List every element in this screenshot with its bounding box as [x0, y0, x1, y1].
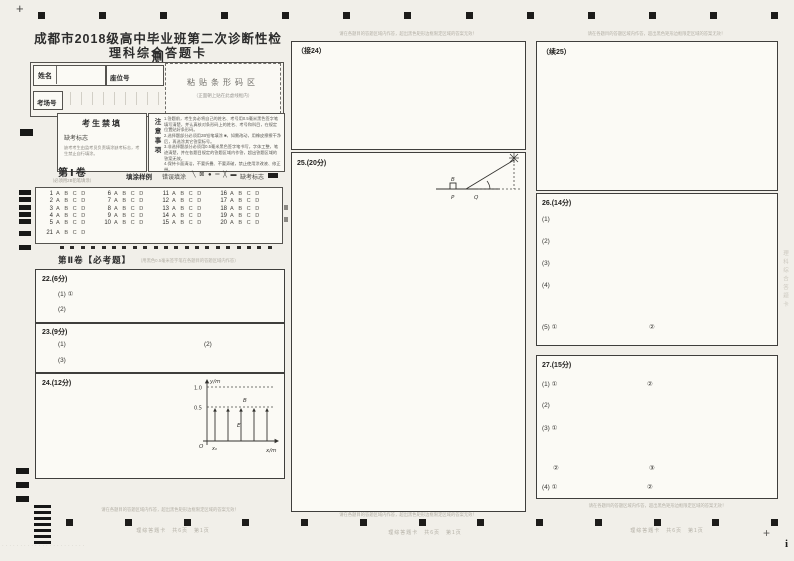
bubble-q20-D[interactable]: D [255, 220, 259, 226]
bubble-q1-D[interactable]: D [81, 191, 85, 197]
fig25-b-label: B [451, 177, 455, 183]
tmark [771, 12, 778, 19]
q27-part3b: ② [553, 464, 559, 472]
bubble-q8-C[interactable]: C [131, 206, 135, 212]
tmark [419, 519, 426, 526]
bar [34, 517, 51, 520]
bubble-q8-A[interactable]: A [114, 206, 118, 212]
notice-item-2: 2.选择题部分必须用2B铅笔填涂 ■，如需改动，用橡皮擦擦干净后，再选涂其它答案… [164, 133, 281, 144]
bubble-q1-B[interactable]: B [64, 191, 68, 197]
answer-row-q1: 1ABCD [40, 191, 98, 197]
answer-row-q3: 3ABCD [40, 206, 98, 212]
question-number: 20 [214, 220, 227, 226]
wrong-fill-label: 错误填涂 [162, 172, 186, 181]
part1-title: 第Ⅰ卷 [58, 164, 88, 179]
q27-part3: (3) ① [542, 424, 557, 432]
tmark [184, 519, 191, 526]
tmark [160, 12, 167, 19]
answer-grid-clock-ticks [60, 246, 272, 249]
answer-row-q7: 7ABCD [98, 198, 156, 204]
barcode-paste-area[interactable]: 粘贴条形码区 （正面朝上贴在此虚线框内） [165, 63, 281, 114]
bubble-q3-B[interactable]: B [64, 206, 68, 212]
part1-subtitle: （必须用2B铅笔填涂） [50, 178, 94, 184]
registration-mark [16, 482, 29, 488]
q27-answer-box[interactable]: 27.(15分) (1) ① ② (2) (3) ① ② ③ (4) ① ② [536, 355, 778, 499]
gtick [112, 246, 116, 249]
tmark [466, 12, 473, 19]
gtick [247, 246, 251, 249]
barcode-title: 粘贴条形码区 [166, 77, 280, 88]
answer-row-q6: 6ABCD [98, 191, 156, 197]
q24-cont-label: （接24） [297, 46, 326, 56]
answer-row-q2: 2ABCD [40, 198, 98, 204]
bubble-q10-A[interactable]: A [114, 220, 118, 226]
tmark [38, 12, 45, 19]
registration-mark [16, 496, 29, 502]
corner-i-mark: i [785, 538, 788, 550]
bubble-q8-B[interactable]: B [122, 206, 126, 212]
page-subtitle: 理科综合答题卡 [30, 44, 286, 61]
tmark [712, 519, 719, 526]
seat-number-field[interactable]: 座位号 [106, 65, 164, 86]
q27-part1b: ② [647, 380, 653, 388]
registration-mark [19, 245, 31, 250]
bubble-q4-B[interactable]: B [64, 213, 68, 219]
q26-part1: (1) [542, 216, 550, 223]
q22-part2: (2) [58, 306, 66, 313]
q26-part4: (4) [542, 282, 550, 289]
seat-label: 座位号 [110, 72, 130, 82]
tickv [103, 92, 104, 105]
q27-part1: (1) ① [542, 380, 557, 388]
q22-part1: (1) ① [58, 290, 73, 298]
q23-part1: (1) [58, 341, 66, 348]
bubble-q7-D[interactable]: D [139, 199, 143, 205]
question-number: 18 [214, 206, 227, 212]
room-number-field[interactable]: 考场号 [33, 91, 63, 110]
fig24-ylabel: y/m [209, 379, 220, 385]
bubble-q13-D[interactable]: D [197, 206, 201, 212]
fig24-b-label: B [243, 398, 247, 404]
absent-mark-label: 缺考标志 [64, 133, 88, 142]
tmark [282, 12, 289, 19]
q24-continued-box[interactable]: （接24） [291, 41, 526, 150]
bubble-q13-B[interactable]: B [180, 206, 184, 212]
bubble-q15-B[interactable]: B [180, 220, 184, 226]
answer-row-q5: 5ABCD [40, 220, 98, 226]
gtick [60, 246, 64, 249]
tmark [710, 12, 717, 19]
bubble-q17-C[interactable]: C [247, 199, 251, 205]
fig24-e-label: E [237, 423, 241, 429]
answer-row-q14: 14ABCD [156, 213, 214, 219]
bar [34, 523, 51, 526]
answer-row-q21: 21ABCD [40, 230, 90, 236]
notice-item-3: 3.非选择题部分必须用0.5毫米黑色签字笔书写，字体工整，笔迹清楚，并在各题目规… [164, 144, 281, 161]
bubble-q8-D[interactable]: D [139, 206, 143, 212]
registration-mark [284, 217, 288, 222]
fig25-burst-icon [509, 153, 519, 163]
bubble-q12-C[interactable]: C [189, 199, 193, 205]
bubble-q12-B[interactable]: B [180, 199, 184, 205]
tmark [477, 519, 484, 526]
bubble-q12-D[interactable]: D [197, 199, 201, 205]
answer-row-q12: 12ABCD [156, 198, 214, 204]
q26-part3: (3) [542, 260, 550, 267]
bubble-q17-A[interactable]: A [230, 199, 234, 205]
gtick [237, 246, 241, 249]
bubble-q19-D[interactable]: D [255, 213, 259, 219]
question-number: 2 [40, 198, 53, 204]
bubble-q10-B[interactable]: B [122, 220, 126, 226]
bubble-q14-A[interactable]: A [172, 213, 176, 219]
tmark [649, 12, 656, 19]
bubble-q3-A[interactable]: A [56, 206, 60, 212]
room-digit-ticks [70, 92, 170, 105]
bubble-q16-B[interactable]: B [238, 191, 242, 197]
bubble-q15-D[interactable]: D [197, 220, 201, 226]
registration-mark [19, 231, 31, 236]
bubble-q6-A[interactable]: A [114, 191, 118, 197]
bar [34, 535, 51, 538]
q26-part5: (5) ① [542, 323, 557, 331]
answer-grid-rows: 1ABCD6ABCD11ABCD16ABCD2ABCD7ABCD12ABCD17… [40, 191, 272, 227]
q23-label: 23.(9分) [42, 327, 67, 337]
registration-mark [19, 197, 31, 202]
tmark [771, 519, 778, 526]
bubble-q2-B[interactable]: B [64, 199, 68, 205]
tickv [158, 92, 159, 105]
fig25-p-label: P [451, 195, 455, 201]
absent-mark-sample-label: 缺考标志 [240, 172, 264, 181]
bubble-q15-A[interactable]: A [172, 220, 176, 226]
answer-row-q10: 10ABCD [98, 220, 156, 226]
bubble-q1-C[interactable]: C [73, 191, 77, 197]
crosshair-top-left: + [16, 1, 24, 16]
bubble-q18-C[interactable]: C [247, 206, 251, 212]
gtick [195, 246, 199, 249]
bubble-q19-B[interactable]: B [238, 213, 242, 219]
bubble-q7-C[interactable]: C [131, 199, 135, 205]
question-number: 4 [40, 213, 53, 219]
q24-figure: y/m x/m O 1.0 0.5 B E x₀ [193, 375, 283, 459]
gtick [226, 246, 230, 249]
q27-part2: (2) [542, 402, 550, 409]
q26-part5b: ② [649, 323, 655, 331]
bubble-q9-A[interactable]: A [114, 213, 118, 219]
gtick [70, 246, 74, 249]
question-number: 11 [156, 191, 169, 197]
grid-left-marks [19, 190, 31, 226]
bubble-q16-C[interactable]: C [247, 191, 251, 197]
bubble-q9-B[interactable]: B [122, 213, 126, 219]
bubble-q2-D[interactable]: D [81, 199, 85, 205]
question-number: 8 [98, 206, 111, 212]
bubble-q20-B[interactable]: B [238, 220, 242, 226]
question-number: 9 [98, 213, 111, 219]
registration-mark [19, 219, 31, 224]
gtick [102, 246, 106, 249]
answer-grid-row21: 21ABCD [40, 230, 90, 236]
notice-item-1: 1.答题前，考生务必将自己的姓名、考号用0.5毫米黑色签字笔填写清楚，并认真核对… [164, 116, 281, 133]
question-number: 10 [98, 220, 111, 226]
registration-mark [284, 205, 288, 210]
q23-part2: (2) [204, 341, 212, 348]
tmark [66, 519, 73, 526]
q24-answer-box[interactable]: 24.(12分) y/m x/m O 1.0 0.5 B E [35, 373, 285, 479]
q22-label: 22.(6分) [42, 274, 67, 284]
q27-part4: (4) ① [542, 483, 557, 491]
registration-mark [20, 129, 33, 136]
answer-grid-box: 1ABCD6ABCD11ABCD16ABCD2ABCD7ABCD12ABCD17… [35, 187, 283, 244]
bubble-q20-C[interactable]: C [247, 220, 251, 226]
name-label: 姓名 [38, 71, 52, 81]
room-label: 考场号 [37, 97, 57, 107]
bubble-q14-B[interactable]: B [180, 213, 184, 219]
bubble-q9-C[interactable]: C [131, 213, 135, 219]
tmark [99, 12, 106, 19]
fig24-field-lines [215, 410, 267, 441]
q27-part3c: ③ [649, 464, 655, 472]
tmark [242, 519, 249, 526]
gtick [154, 246, 158, 249]
answer-row-q20: 20ABCD [214, 220, 272, 226]
tickv [125, 92, 126, 105]
bubble-q12-A[interactable]: A [172, 199, 176, 205]
gtick [205, 246, 209, 249]
tmark [404, 12, 411, 19]
region-note-top-middle: 请在各题目的答题区域内作答，超出黑色矩形边框限定区域的答案无效！ [292, 31, 524, 37]
bubble-q19-C[interactable]: C [247, 213, 251, 219]
question-number: 16 [214, 191, 227, 197]
bubble-q14-C[interactable]: C [189, 213, 193, 219]
answer-row-q13: 13ABCD [156, 206, 214, 212]
gtick [81, 246, 85, 249]
question-number: 15 [156, 220, 169, 226]
fig24-arrowheads [213, 408, 269, 412]
bubble-q11-C[interactable]: C [189, 191, 193, 197]
region-note-bottom-right: 请在各题目的答题区域内作答，超出黑色矩形边框限定区域的答案无效！ [545, 503, 770, 509]
q26-label: 26.(14分) [542, 198, 571, 208]
bubble-q17-D[interactable]: D [255, 199, 259, 205]
bubble-q5-B[interactable]: B [64, 220, 68, 226]
edge-vertical-text: 理科综合答题卡 [781, 250, 789, 310]
bubble-q5-C[interactable]: C [73, 220, 77, 226]
bubble-q21-D[interactable]: D [81, 230, 85, 236]
answer-row-q4: 4ABCD [40, 213, 98, 219]
q26-part2: (2) [542, 238, 550, 245]
answer-row-q15: 15ABCD [156, 220, 214, 226]
bubble-q10-D[interactable]: D [139, 220, 143, 226]
tmark [125, 519, 132, 526]
answer-row-q18: 18ABCD [214, 206, 272, 212]
bubble-q6-B[interactable]: B [122, 191, 126, 197]
answer-row-q19: 19ABCD [214, 213, 272, 219]
tickv [147, 92, 148, 105]
gtick [268, 246, 272, 249]
bubble-q7-A[interactable]: A [114, 199, 118, 205]
bubble-q21-B[interactable]: B [64, 230, 68, 236]
bubble-q11-A[interactable]: A [172, 191, 176, 197]
q25-label: 25.(20分) [297, 158, 326, 168]
bubble-q1-A[interactable]: A [56, 191, 60, 197]
bubble-q9-D[interactable]: D [139, 213, 143, 219]
tmark [536, 519, 543, 526]
tmark [221, 12, 228, 19]
fig25-q-label: Q [474, 195, 479, 201]
question-number: 14 [156, 213, 169, 219]
region-note-bottom-middle: 请在各题目的答题区域内作答，超出黑色矩形边框限定区域的答案无效！ [292, 512, 524, 518]
registration-mark [19, 205, 31, 210]
q27-label: 27.(15分) [542, 360, 571, 370]
bubble-q2-A[interactable]: A [56, 199, 60, 205]
bubble-q11-B[interactable]: B [180, 191, 184, 197]
tickv [114, 92, 115, 105]
gtick [185, 246, 189, 249]
tmark [588, 12, 595, 19]
gtick [164, 246, 168, 249]
bubble-q16-A[interactable]: A [230, 191, 234, 197]
gtick [91, 246, 95, 249]
scanned-answer-sheet: + + i 成都市2018级高中毕业班第二次诊断性检测 理科综合答题卡 姓名 座… [0, 0, 794, 561]
bubble-q18-B[interactable]: B [238, 206, 242, 212]
bubble-q21-C[interactable]: C [73, 230, 77, 236]
q23-answer-box[interactable]: 23.(9分) (1) (2) (3) [35, 323, 285, 373]
tmark [595, 519, 602, 526]
bubble-q14-D[interactable]: D [197, 213, 201, 219]
bubble-q16-D[interactable]: D [255, 191, 259, 197]
question-number: 5 [40, 220, 53, 226]
bubble-q4-A[interactable]: A [56, 213, 60, 219]
crosshair-bottom-right: + [763, 526, 770, 540]
fig24-value-1: 1.0 [194, 386, 202, 392]
tmark [301, 519, 308, 526]
registration-mark [19, 190, 31, 195]
barcode-note: （正面朝上贴在此虚线框内） [166, 93, 280, 99]
question-number: 12 [156, 198, 169, 204]
gtick [257, 246, 261, 249]
fig24-xlabel: x/m [265, 448, 276, 454]
question-number: 13 [156, 206, 169, 212]
timing-marks-bottom [66, 519, 778, 526]
answer-row-q17: 17ABCD [214, 198, 272, 204]
question-number: 17 [214, 198, 227, 204]
bubble-q15-C[interactable]: C [189, 220, 193, 226]
bubble-q3-C[interactable]: C [73, 206, 77, 212]
footer-right: 理综答题卡 共6页 第1页 [602, 527, 732, 534]
q25-cont-label: （续25） [542, 47, 571, 57]
bar [34, 529, 51, 532]
question-number: 7 [98, 198, 111, 204]
name-divider [56, 66, 57, 84]
gtick [174, 246, 178, 249]
question-number: 21 [40, 230, 53, 236]
fig24-origin: O [199, 444, 204, 450]
footer-middle: 理综答题卡 共6页 第1页 [360, 529, 490, 536]
answer-row-q8: 8ABCD [98, 206, 156, 212]
answer-row-q16: 16ABCD [214, 191, 272, 197]
bar [34, 505, 51, 508]
q26-answer-box[interactable]: 26.(14分) (1) (2) (3) (4) (5) ① ② [536, 193, 778, 346]
bubble-q18-D[interactable]: D [255, 206, 259, 212]
registration-mark [16, 468, 29, 474]
bubble-q2-C[interactable]: C [73, 199, 77, 205]
bubble-q13-C[interactable]: C [189, 206, 193, 212]
answer-row-q9: 9ABCD [98, 213, 156, 219]
bubble-q19-A[interactable]: A [230, 213, 234, 219]
registration-mark [19, 212, 31, 217]
forbidden-note: 缺考考生由监考员负责填涂缺考标志，考生禁止自行填涂。 [64, 145, 140, 156]
tickv [70, 92, 71, 105]
forbidden-title: 考生禁填 [58, 118, 146, 129]
q25-figure: B P Q [430, 153, 525, 205]
region-note-top-right: 请在各题目的答题区域内作答，超出黑色矩形边框限定区域的答案无效！ [537, 31, 776, 37]
tickv [136, 92, 137, 105]
tmark [654, 519, 661, 526]
name-field[interactable]: 姓名 [33, 65, 106, 86]
tmark [527, 12, 534, 19]
notice-box: 注意事项 1.答题前，考生务必将自己的姓名、考号用0.5毫米黑色签字笔填写清楚，… [148, 113, 285, 172]
bubble-q13-A[interactable]: A [172, 206, 176, 212]
gtick [143, 246, 147, 249]
question-number: 1 [40, 191, 53, 197]
bubble-q4-C[interactable]: C [73, 213, 77, 219]
gtick [122, 246, 126, 249]
part2-title: 第Ⅱ卷【必考题】 [58, 254, 131, 266]
fig24-value-05: 0.5 [194, 406, 202, 412]
timing-marks-top [38, 12, 778, 19]
q24-label: 24.(12分) [42, 378, 71, 388]
q25-answer-box[interactable]: 25.(20分) B P Q [291, 152, 526, 512]
part2-subtitle: （用黑色0.5毫米签字笔在各题目的答题区域内作答） [138, 258, 239, 264]
bubble-q10-C[interactable]: C [131, 220, 135, 226]
question-number: 3 [40, 206, 53, 212]
bubble-q3-D[interactable]: D [81, 206, 85, 212]
q22-answer-box[interactable]: 22.(6分) (1) ① (2) [35, 269, 285, 323]
bubble-q20-A[interactable]: A [230, 220, 234, 226]
bubble-q6-D[interactable]: D [139, 191, 143, 197]
bubble-q7-B[interactable]: B [122, 199, 126, 205]
tmark [343, 12, 350, 19]
bubble-q21-A[interactable]: A [56, 230, 60, 236]
question-number: 19 [214, 213, 227, 219]
q23-part3: (3) [58, 357, 66, 364]
q25-continued-box[interactable]: （续25） [536, 41, 778, 191]
tmark [360, 519, 367, 526]
bubble-q6-C[interactable]: C [131, 191, 135, 197]
bubble-q18-A[interactable]: A [230, 206, 234, 212]
barcode-stack [34, 505, 51, 547]
filled-mark-sample [268, 173, 278, 178]
fig24-x0-label: x₀ [211, 446, 217, 452]
fill-sample-label: 填涂样例 [126, 171, 152, 181]
bubble-q5-D[interactable]: D [81, 220, 85, 226]
answer-row-q11: 11ABCD [156, 191, 214, 197]
bubble-q5-A[interactable]: A [56, 220, 60, 226]
scan-noise-dots: ······················· [2, 543, 86, 549]
bubble-q17-B[interactable]: B [238, 199, 242, 205]
gtick [216, 246, 220, 249]
bubble-q4-D[interactable]: D [81, 213, 85, 219]
footer-left: 理综答题卡 共6页 第1页 [108, 527, 238, 534]
tickv [81, 92, 82, 105]
question-number: 6 [98, 191, 111, 197]
bubble-q11-D[interactable]: D [197, 191, 201, 197]
notice-vertical-title: 注意事项 [151, 118, 161, 168]
region-note-bottom-left: 请在各题目的答题区域内作答，超出黑色矩形边框限定区域的答案无效！ [70, 507, 270, 513]
wrong-fill-symbols: ╲ ⊠ ● ═ ╳ ▬ [192, 171, 237, 178]
bar [34, 511, 51, 514]
